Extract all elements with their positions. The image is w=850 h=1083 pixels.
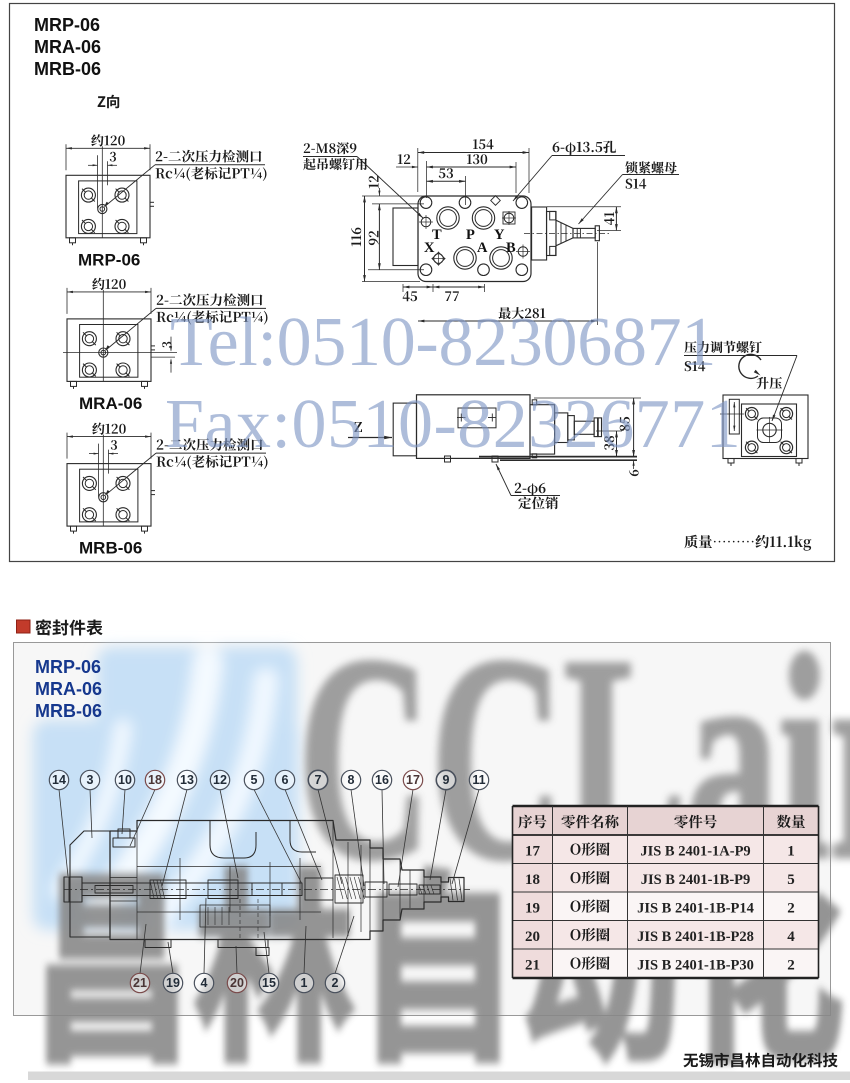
svg-text:19: 19 bbox=[525, 901, 540, 917]
svg-text:MRP-06: MRP-06 bbox=[78, 250, 140, 269]
svg-text:15: 15 bbox=[262, 976, 276, 990]
svg-text:9: 9 bbox=[443, 773, 450, 787]
svg-text:JIS B 2401-1A-P9: JIS B 2401-1A-P9 bbox=[640, 844, 750, 860]
svg-text:MRB-06: MRB-06 bbox=[79, 539, 142, 558]
svg-text:MRP-06: MRP-06 bbox=[35, 657, 101, 677]
svg-text:JIS B 2401-1B-P30: JIS B 2401-1B-P30 bbox=[637, 958, 754, 974]
svg-text:MRA-06: MRA-06 bbox=[35, 679, 102, 699]
svg-text:21: 21 bbox=[525, 958, 540, 974]
svg-text:20: 20 bbox=[525, 929, 540, 945]
svg-text:Y: Y bbox=[494, 227, 505, 243]
svg-text:2: 2 bbox=[787, 901, 795, 917]
svg-text:11: 11 bbox=[472, 773, 485, 787]
svg-text:JIS B 2401-1B-P9: JIS B 2401-1B-P9 bbox=[641, 872, 751, 888]
svg-text:1: 1 bbox=[787, 844, 795, 860]
svg-text:14: 14 bbox=[52, 773, 66, 787]
svg-text:10: 10 bbox=[118, 773, 132, 787]
svg-text:7: 7 bbox=[315, 773, 322, 787]
svg-text:19: 19 bbox=[166, 976, 180, 990]
svg-text:2: 2 bbox=[787, 958, 795, 974]
svg-text:16: 16 bbox=[375, 773, 389, 787]
svg-text:JIS B 2401-1B-P14: JIS B 2401-1B-P14 bbox=[637, 901, 754, 917]
svg-text:B: B bbox=[506, 240, 516, 256]
svg-text:18: 18 bbox=[525, 872, 540, 888]
svg-text:17: 17 bbox=[525, 844, 541, 860]
svg-text:P: P bbox=[466, 227, 475, 243]
svg-text:21: 21 bbox=[133, 976, 147, 990]
svg-text:4: 4 bbox=[201, 976, 208, 990]
svg-text:3: 3 bbox=[87, 773, 94, 787]
svg-text:1: 1 bbox=[301, 976, 308, 990]
svg-text:17: 17 bbox=[406, 773, 420, 787]
svg-text:13: 13 bbox=[180, 773, 194, 787]
svg-text:JIS B 2401-1B-P28: JIS B 2401-1B-P28 bbox=[637, 929, 754, 945]
svg-text:MRA-06: MRA-06 bbox=[79, 394, 142, 413]
svg-text:6: 6 bbox=[282, 773, 289, 787]
svg-text:4: 4 bbox=[787, 929, 795, 945]
svg-text:MRB-06: MRB-06 bbox=[34, 59, 101, 79]
svg-text:18: 18 bbox=[148, 773, 162, 787]
svg-text:MRP-06: MRP-06 bbox=[34, 15, 100, 35]
svg-text:20: 20 bbox=[230, 976, 244, 990]
svg-text:A: A bbox=[477, 240, 488, 256]
svg-text:Fax:0510-82326771: Fax:0510-82326771 bbox=[165, 386, 741, 463]
svg-text:MRA-06: MRA-06 bbox=[34, 37, 101, 57]
svg-text:8: 8 bbox=[348, 773, 355, 787]
svg-text:Tel:0510-82306871: Tel:0510-82306871 bbox=[170, 304, 716, 381]
svg-text:2: 2 bbox=[332, 976, 339, 990]
svg-text:MRB-06: MRB-06 bbox=[35, 701, 102, 721]
svg-text:12: 12 bbox=[213, 773, 227, 787]
svg-text:5: 5 bbox=[787, 872, 795, 888]
svg-text:X: X bbox=[424, 240, 435, 256]
svg-text:5: 5 bbox=[251, 773, 258, 787]
